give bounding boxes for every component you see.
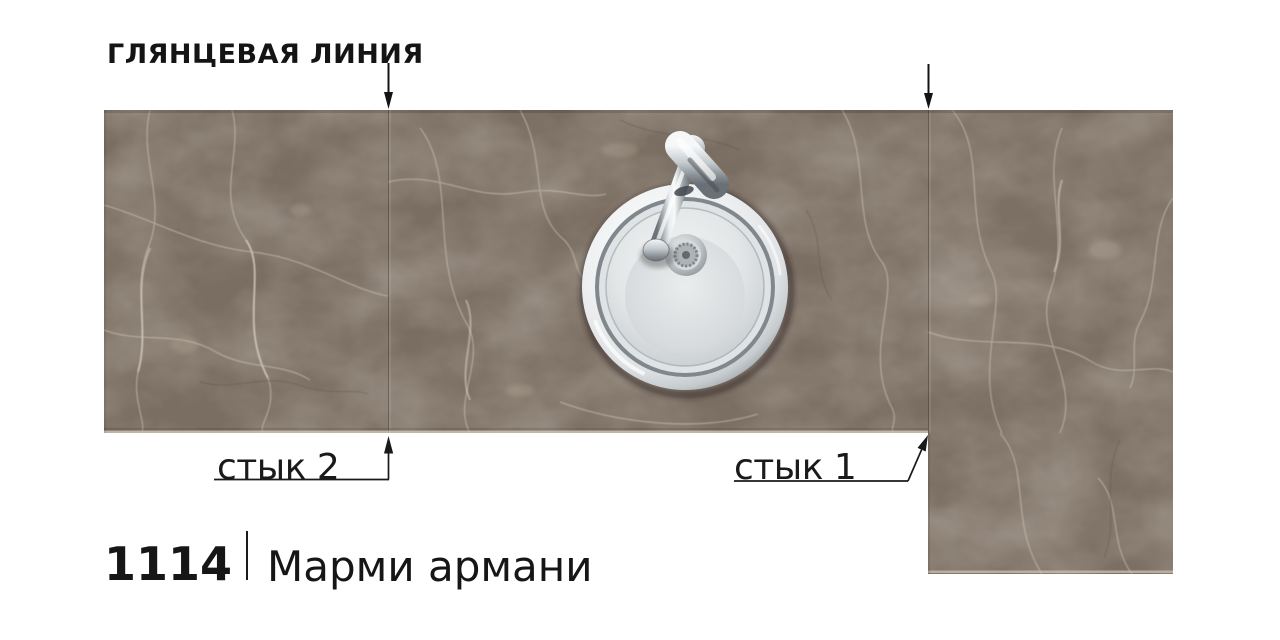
seam2-label: стык 2	[217, 450, 339, 486]
decor-code: 1114	[104, 541, 232, 587]
glossy-line-label: ГЛЯНЦЕВАЯ ЛИНИЯ	[107, 41, 424, 68]
glossy-line-arrow-right	[924, 64, 933, 109]
caption-divider	[246, 531, 248, 580]
seam1-label: стык 1	[734, 450, 856, 486]
faucet-aerator	[643, 239, 669, 261]
countertop-seam-diagram: ГЛЯНЦЕВАЯ ЛИНИЯ стык 2 стык 1 1114 Марми…	[0, 0, 1280, 640]
decor-name: Марми армани	[267, 546, 593, 588]
